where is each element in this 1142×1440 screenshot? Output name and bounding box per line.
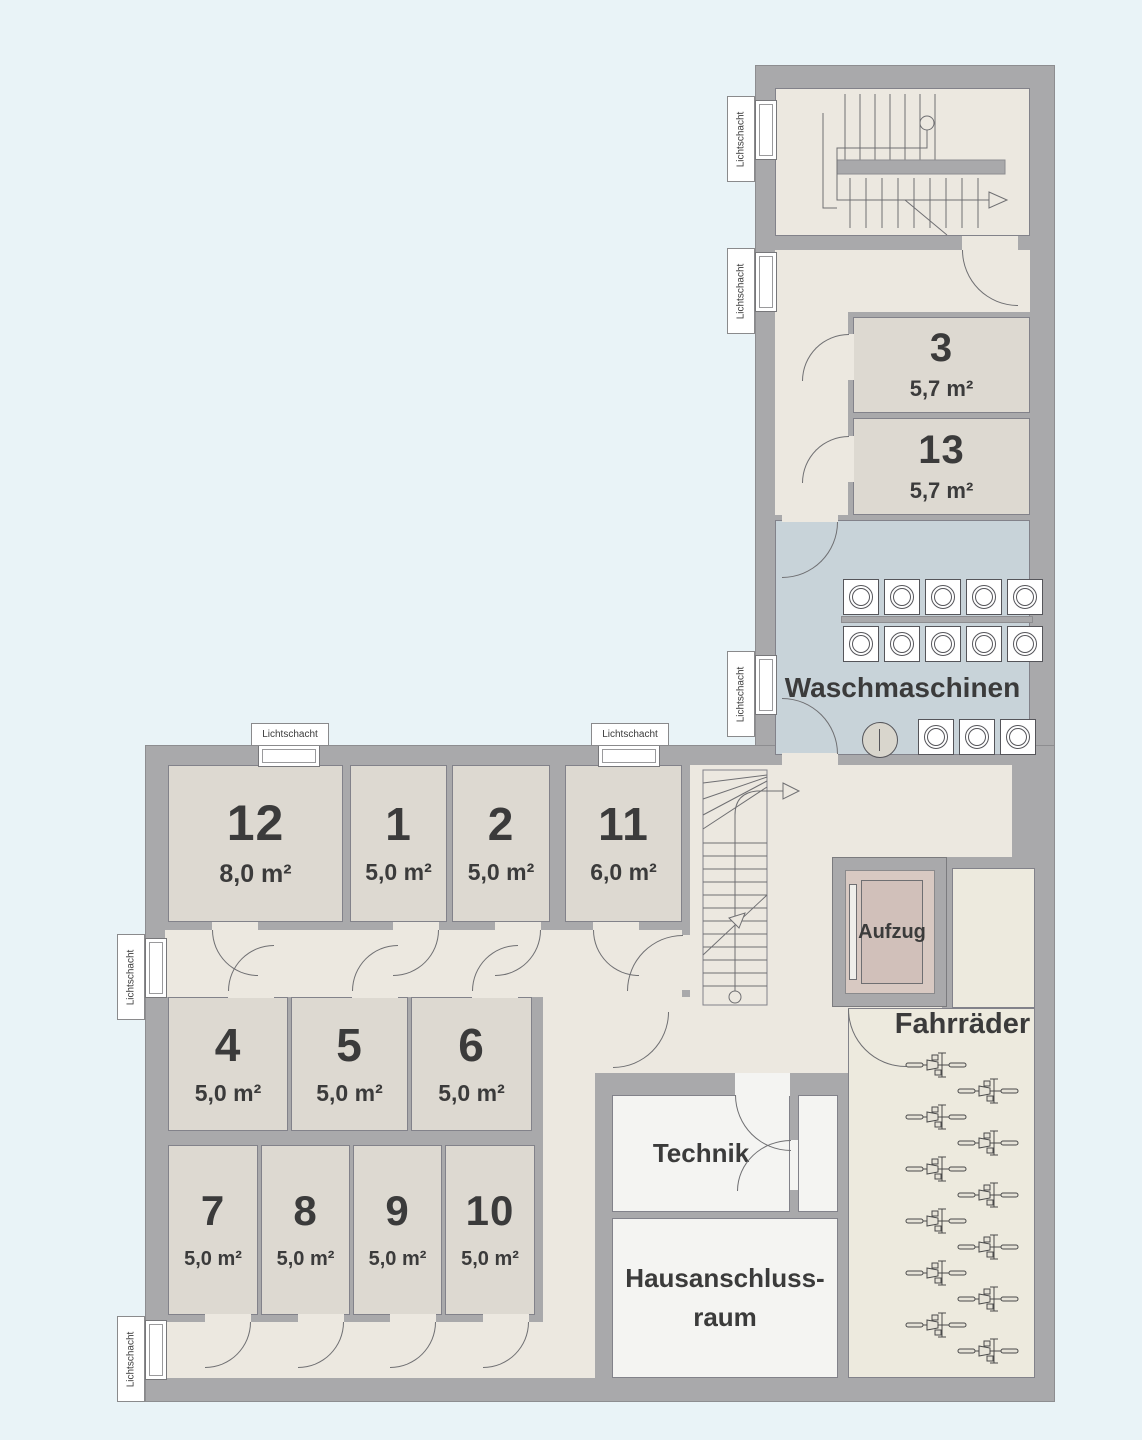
light-shaft-label: Lichtschacht — [117, 934, 145, 1020]
bicycle-rack — [848, 1008, 1035, 1378]
room-number: 1 — [385, 801, 412, 847]
room-area: 5,7 m² — [910, 376, 974, 402]
floor-plan: 3 5,7 m² 13 5,7 m² Waschmaschinen 12 8,0… — [0, 0, 1142, 1440]
bicycle-room-strip — [952, 868, 1035, 1008]
room-area: 5,0 m² — [184, 1248, 242, 1271]
laundry-room-label: Waschmaschinen — [775, 672, 1030, 704]
washing-machine-icon — [925, 579, 961, 615]
room-area: 8,0 m² — [219, 860, 291, 889]
bicycle-icon — [956, 1336, 1020, 1366]
light-shaft-label: Lichtschacht — [117, 1316, 145, 1402]
washing-machine-icon — [1000, 719, 1036, 755]
washing-machine-icon — [843, 579, 879, 615]
door-opening — [782, 513, 838, 522]
light-shaft-label: Lichtschacht — [251, 723, 329, 746]
laundry-counter — [841, 616, 1033, 623]
washing-machine-icon — [925, 626, 961, 662]
room-area: 5,0 m² — [369, 1248, 427, 1271]
washing-machine-icon — [843, 626, 879, 662]
room-11: 11 6,0 m² — [565, 765, 682, 922]
room-area: 5,7 m² — [910, 478, 974, 504]
room-2: 2 5,0 m² — [452, 765, 550, 922]
room-number: 5 — [336, 1022, 363, 1068]
room-area: 5,0 m² — [468, 859, 534, 886]
room-area: 5,0 m² — [277, 1248, 335, 1271]
door-opening — [790, 1140, 798, 1190]
door-opening — [782, 753, 838, 767]
east-corridor — [543, 997, 595, 1378]
technik-label: Technik — [653, 1138, 749, 1169]
staircase-lower — [695, 765, 815, 1010]
light-shaft-label: Lichtschacht — [727, 248, 755, 334]
door-opening — [735, 1073, 790, 1096]
room-6: 6 5,0 m² — [411, 997, 532, 1131]
room-number: 11 — [598, 801, 649, 847]
room-area: 5,0 m² — [316, 1080, 382, 1107]
room-12: 12 8,0 m² — [168, 765, 343, 922]
hausanschluss-label-line1: Hausanschluss- — [625, 1263, 824, 1294]
washing-machine-row-2 — [843, 626, 1043, 662]
room-8: 8 5,0 m² — [261, 1145, 350, 1315]
room-area: 6,0 m² — [590, 859, 656, 886]
washing-machine-icon — [966, 626, 1002, 662]
room-number: 13 — [918, 430, 965, 470]
light-shaft — [755, 655, 777, 715]
washing-machine-icon — [959, 719, 995, 755]
room-number: 3 — [930, 328, 953, 368]
washing-machine-icon — [884, 579, 920, 615]
room-number: 4 — [215, 1022, 242, 1068]
room-5: 5 5,0 m² — [291, 997, 408, 1131]
light-shaft — [755, 100, 777, 160]
light-shaft — [258, 745, 320, 767]
technik-vestibule — [798, 1095, 838, 1212]
room-area: 5,0 m² — [195, 1080, 261, 1107]
room-1: 1 5,0 m² — [350, 765, 447, 922]
room-7: 7 5,0 m² — [168, 1145, 258, 1315]
room-area: 5,0 m² — [365, 859, 431, 886]
room-number: 6 — [458, 1022, 485, 1068]
laundry-sink-icon — [862, 722, 898, 758]
washing-machine-icon — [1007, 626, 1043, 662]
room-9: 9 5,0 m² — [353, 1145, 442, 1315]
room-number: 8 — [293, 1190, 317, 1232]
elevator-label: Aufzug — [858, 921, 926, 944]
door-opening — [682, 935, 696, 990]
washing-machine-row-1 — [843, 579, 1043, 615]
room-number: 12 — [227, 798, 285, 848]
hausanschlussraum: Hausanschluss- raum — [612, 1218, 838, 1378]
hausanschluss-label-line2: raum — [693, 1302, 757, 1333]
washing-machine-icon — [1007, 579, 1043, 615]
light-shaft — [145, 1320, 167, 1380]
light-shaft-label: Lichtschacht — [591, 723, 669, 746]
elevator-door-panel — [849, 884, 857, 980]
room-13: 13 5,7 m² — [853, 418, 1030, 515]
room-number: 7 — [201, 1190, 225, 1232]
room-4: 4 5,0 m² — [168, 997, 288, 1131]
washing-machine-row-3 — [918, 719, 1036, 755]
elevator-cabin: Aufzug — [861, 880, 923, 984]
room-number: 10 — [466, 1190, 515, 1232]
room-number: 2 — [488, 801, 515, 847]
door-opening — [595, 1012, 613, 1067]
washing-machine-icon — [884, 626, 920, 662]
light-shaft-label: Lichtschacht — [727, 96, 755, 182]
light-shaft-label: Lichtschacht — [727, 651, 755, 737]
staircase-upper — [775, 88, 1030, 236]
washing-machine-icon — [966, 579, 1002, 615]
room-10: 10 5,0 m² — [445, 1145, 535, 1315]
light-shaft — [598, 745, 660, 767]
room-number: 9 — [385, 1190, 409, 1232]
light-shaft — [145, 938, 167, 998]
room-area: 5,0 m² — [438, 1080, 504, 1107]
light-shaft — [755, 252, 777, 312]
washing-machine-icon — [918, 719, 954, 755]
room-3: 3 5,7 m² — [853, 317, 1030, 413]
room-area: 5,0 m² — [461, 1248, 519, 1271]
